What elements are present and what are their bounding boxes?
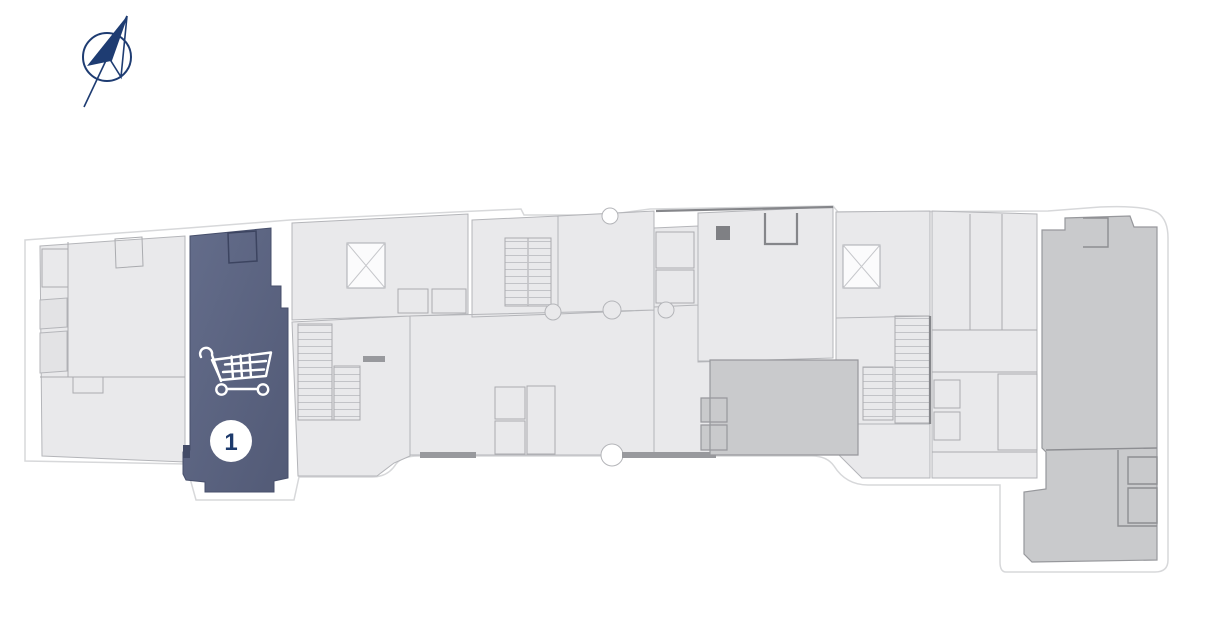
duct-square: [716, 226, 730, 240]
column: [658, 302, 674, 318]
compass-needle-fill: [87, 16, 127, 66]
floor-plan-canvas: 1: [0, 0, 1223, 641]
column-notch: [602, 208, 618, 224]
room-medium: [701, 360, 858, 455]
badge-label: 1: [224, 429, 237, 456]
floor-plan: 1: [0, 0, 1223, 641]
unit-1-notch: [183, 445, 190, 458]
column-notch: [601, 444, 623, 466]
column: [545, 304, 561, 320]
stair-flight: [334, 366, 360, 420]
rooms-alt: [40, 298, 67, 373]
north-arrow-icon: [83, 16, 131, 107]
column: [603, 301, 621, 319]
unit-1-badge[interactable]: 1: [210, 420, 252, 462]
stair-flight: [505, 238, 551, 306]
stair-flight: [895, 316, 930, 423]
stair-flight: [298, 324, 332, 420]
unit-right: [1024, 216, 1157, 562]
stair-flight: [863, 367, 893, 420]
